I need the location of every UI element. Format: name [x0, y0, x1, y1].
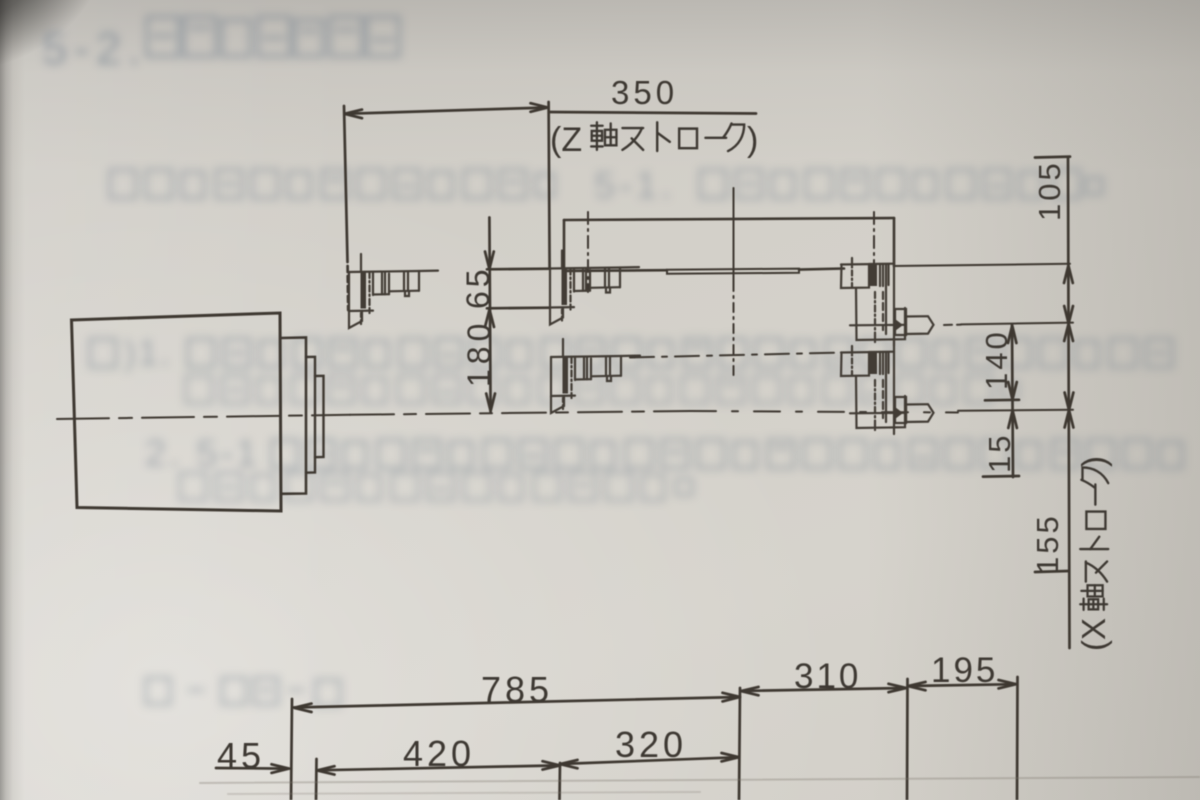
svg-text:420: 420: [403, 733, 475, 774]
svg-text:65: 65: [460, 265, 496, 309]
svg-text:320: 320: [615, 724, 687, 765]
svg-text:310: 310: [794, 657, 861, 696]
svg-text:15: 15: [982, 433, 1017, 473]
svg-text:350: 350: [611, 74, 678, 111]
svg-text:(Z: (Z: [550, 121, 582, 159]
svg-text:45: 45: [217, 735, 265, 776]
svg-text:105: 105: [1032, 160, 1067, 221]
svg-text:140: 140: [979, 329, 1014, 390]
svg-text:155: 155: [1030, 513, 1065, 574]
svg-text:195: 195: [931, 651, 998, 690]
svg-text:180: 180: [461, 319, 497, 387]
svg-text:): ): [1075, 456, 1112, 467]
svg-text:785: 785: [481, 669, 553, 710]
svg-text:(X: (X: [1075, 618, 1112, 651]
svg-text:): ): [747, 121, 758, 159]
